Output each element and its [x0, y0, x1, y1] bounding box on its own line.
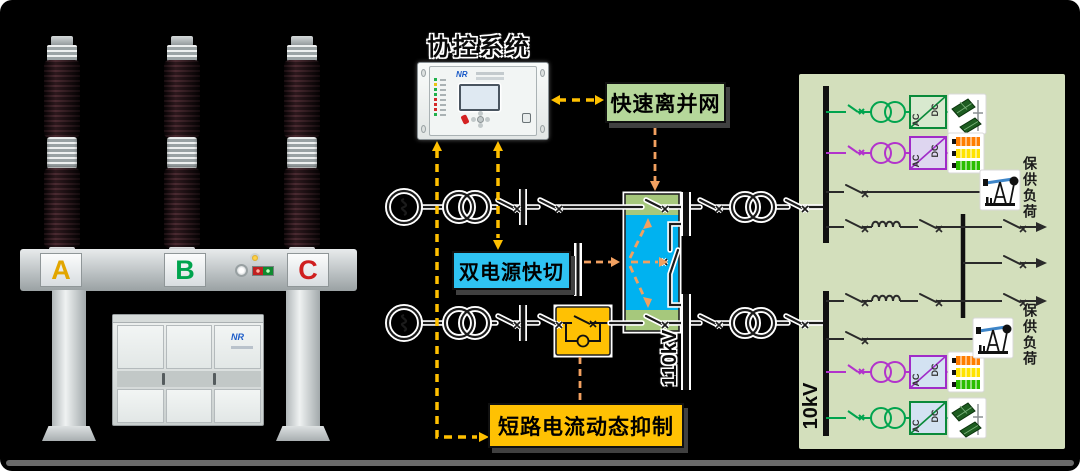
solar-panel-icon: [948, 398, 986, 438]
guaranteed-load-label-top: 保供负荷: [1023, 156, 1037, 220]
dc-label: DC: [930, 409, 940, 422]
acdc-converter-storage-bottom: AC DC: [910, 356, 946, 388]
coordination-controller-device: NR: [417, 62, 549, 140]
acdc-converter-solar-top: AC DC: [910, 96, 946, 128]
ac-label: AC: [911, 419, 921, 432]
load-arrow: [1036, 258, 1047, 268]
keypad-buttons: [478, 117, 483, 122]
control-system-title: 协控系统: [408, 27, 550, 62]
reactor-coil-icon: [872, 222, 900, 301]
oil-pumpjack-icon: [980, 170, 1020, 210]
storage-branch: [826, 143, 948, 382]
device-logo: NR: [456, 70, 468, 79]
battery-storage-icon: [948, 133, 984, 173]
acdc-converter-storage-top: AC DC: [910, 137, 946, 169]
arrow-down-icon: [650, 181, 660, 191]
ac-label: AC: [911, 113, 921, 126]
fast-islanding-box: 快速离并网: [605, 82, 726, 123]
dc-label: DC: [930, 363, 940, 376]
bus-label-10kv: 10kV: [800, 379, 820, 433]
dual-source-transfer-box: 双电源快切: [452, 251, 571, 290]
dc-label: DC: [930, 103, 940, 116]
power-system-diagram: A B C NR: [0, 0, 1080, 471]
arrow-right-icon: [611, 257, 620, 267]
short-circuit-suppression-box: 短路电流动态抑制: [488, 403, 684, 448]
comm-port: [522, 113, 531, 123]
dc-label: DC: [930, 144, 940, 157]
bus-label-110kv: 110kV: [659, 323, 679, 393]
acdc-converter-solar-bottom: AC DC: [910, 402, 946, 434]
lcd-screen: [459, 84, 500, 111]
led-indicators: [434, 78, 437, 81]
solar-panel-icon: [948, 94, 986, 134]
guaranteed-load-label-bottom: 保供负荷: [1023, 303, 1037, 367]
feeder-wires: [826, 192, 1036, 339]
arrow-right-icon: [595, 95, 604, 105]
fault-current-limiter: [556, 307, 610, 355]
arrow-left-icon: [551, 95, 560, 105]
arrow-down-icon: [493, 240, 503, 250]
arrow-up-icon: [432, 141, 442, 151]
ac-label: AC: [911, 154, 921, 167]
ac-label: AC: [911, 373, 921, 386]
load-arrow: [1036, 222, 1047, 232]
arrow-up-icon: [493, 141, 503, 151]
oil-pumpjack-icon: [973, 318, 1013, 358]
